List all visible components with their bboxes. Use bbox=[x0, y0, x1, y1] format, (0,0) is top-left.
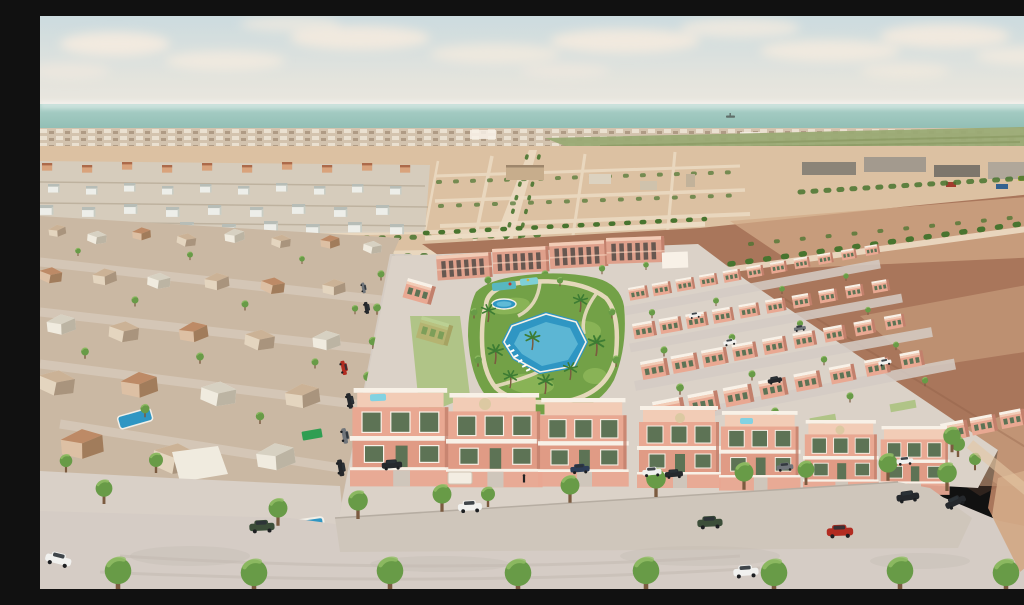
small-pool bbox=[492, 299, 516, 309]
roof-pool bbox=[740, 418, 753, 424]
garden-kiosk bbox=[448, 472, 472, 484]
white-block bbox=[662, 252, 689, 269]
pedestrian bbox=[523, 474, 526, 482]
aerial-render-image: Aerial 3D visualisation of a new residen… bbox=[40, 16, 1024, 589]
horizon-haze bbox=[40, 101, 1024, 109]
roof-pool bbox=[370, 394, 386, 402]
render-canvas bbox=[40, 16, 1024, 589]
